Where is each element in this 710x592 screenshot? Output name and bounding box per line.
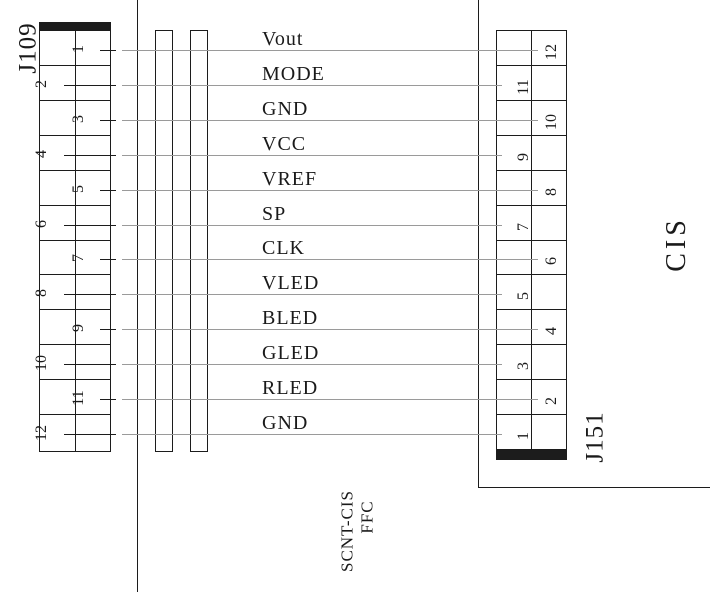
- pin-row-separator: [39, 309, 111, 310]
- signal-wire: [122, 399, 538, 400]
- pin-number-right: 8: [544, 188, 560, 196]
- signal-wire: [122, 294, 502, 295]
- signal-wire: [122, 190, 538, 191]
- signal-wire: [122, 225, 502, 226]
- pin-stub-left: [64, 364, 116, 365]
- pin-number-left: 2: [34, 80, 50, 88]
- pin-stub-left: [64, 225, 116, 226]
- connector-j109-polarity-bar: [39, 22, 111, 31]
- pin-row-separator: [39, 135, 111, 136]
- signal-label: MODE: [262, 64, 325, 84]
- ffc-ribbon-bar-1: [155, 30, 173, 452]
- pin-number-right: 5: [516, 292, 532, 300]
- cis-module-left-border: [478, 0, 479, 487]
- pin-number-right: 4: [544, 327, 560, 335]
- pin-number-right: 7: [516, 223, 532, 231]
- signal-label: RLED: [262, 378, 318, 398]
- pin-number-left: 7: [71, 254, 87, 262]
- signal-label: SP: [262, 204, 286, 224]
- pin-number-left: 6: [34, 220, 50, 228]
- pin-number-right: 10: [544, 114, 560, 130]
- pin-stub-left: [100, 259, 116, 260]
- pin-number-left: 10: [34, 355, 50, 371]
- cable-label-line2: FFC: [359, 500, 376, 533]
- signal-wire: [122, 85, 502, 86]
- pin-row-separator: [496, 170, 567, 171]
- pin-stub-left: [64, 294, 116, 295]
- signal-wire: [122, 329, 538, 330]
- pin-stub-left: [100, 329, 116, 330]
- signal-label: BLED: [262, 308, 318, 328]
- pin-row-separator: [39, 274, 111, 275]
- pin-number-left: 4: [34, 150, 50, 158]
- pin-number-left: 9: [71, 324, 87, 332]
- pin-number-right: 3: [516, 362, 532, 370]
- pin-number-left: 12: [34, 425, 50, 441]
- cable-label-line1: SCNT-CIS: [339, 490, 356, 572]
- pin-stub-left: [64, 85, 116, 86]
- signal-wire: [122, 434, 502, 435]
- signal-label: GLED: [262, 343, 319, 363]
- pin-number-right: 11: [516, 79, 532, 94]
- pin-number-left: 1: [71, 45, 87, 53]
- signal-wire: [122, 259, 538, 260]
- pin-row-separator: [496, 309, 567, 310]
- pin-row-separator: [39, 170, 111, 171]
- pin-row-separator: [496, 100, 567, 101]
- connector-j109-label: J109: [16, 22, 41, 73]
- pin-row-separator: [496, 65, 567, 66]
- ffc-ribbon-bar-2: [190, 30, 208, 452]
- pin-row-separator: [496, 379, 567, 380]
- signal-label: VREF: [262, 169, 317, 189]
- connector-j151-polarity-bar: [496, 449, 567, 460]
- signal-wire: [122, 155, 502, 156]
- pin-row-separator: [496, 205, 567, 206]
- pin-number-right: 12: [544, 44, 560, 60]
- pin-row-separator: [39, 240, 111, 241]
- signal-label: GND: [262, 413, 308, 433]
- pin-row-separator: [496, 344, 567, 345]
- pin-number-right: 2: [544, 397, 560, 405]
- pin-number-left: 3: [71, 115, 87, 123]
- pin-number-left: 5: [71, 185, 87, 193]
- pin-row-separator: [39, 414, 111, 415]
- pin-stub-left: [100, 190, 116, 191]
- pin-row-separator: [39, 344, 111, 345]
- connector-j151-label: J151: [583, 411, 608, 462]
- pin-stub-left: [100, 50, 116, 51]
- pin-row-separator: [39, 65, 111, 66]
- pin-number-left: 11: [71, 390, 87, 405]
- signal-wire: [122, 364, 502, 365]
- pin-number-right: 9: [516, 153, 532, 161]
- signal-label: CLK: [262, 238, 305, 258]
- pin-row-separator: [496, 240, 567, 241]
- pin-stub-left: [64, 155, 116, 156]
- pin-number-left: 8: [34, 289, 50, 297]
- pin-row-separator: [39, 205, 111, 206]
- signal-label: GND: [262, 99, 308, 119]
- pin-row-separator: [496, 414, 567, 415]
- connector-j109-column-divider: [75, 31, 76, 452]
- pin-row-separator: [39, 100, 111, 101]
- pin-stub-left: [64, 434, 116, 435]
- pin-row-separator: [496, 135, 567, 136]
- signal-label: VLED: [262, 273, 319, 293]
- signal-label: Vout: [262, 29, 303, 49]
- schematic-page: Vout112MODE211GND310VCC49VREF58SP67CLK76…: [0, 0, 710, 592]
- signal-wire: [122, 50, 538, 51]
- signal-wire: [122, 120, 538, 121]
- cis-module-label: CIS: [663, 216, 691, 272]
- pin-number-right: 6: [544, 257, 560, 265]
- signal-label: VCC: [262, 134, 306, 154]
- pin-stub-left: [100, 399, 116, 400]
- pin-row-separator: [39, 379, 111, 380]
- pin-row-separator: [496, 274, 567, 275]
- ffc-bus-divider-line: [137, 0, 138, 592]
- cis-module-bottom-border: [478, 487, 710, 488]
- pin-stub-left: [100, 120, 116, 121]
- pin-number-right: 1: [516, 432, 532, 440]
